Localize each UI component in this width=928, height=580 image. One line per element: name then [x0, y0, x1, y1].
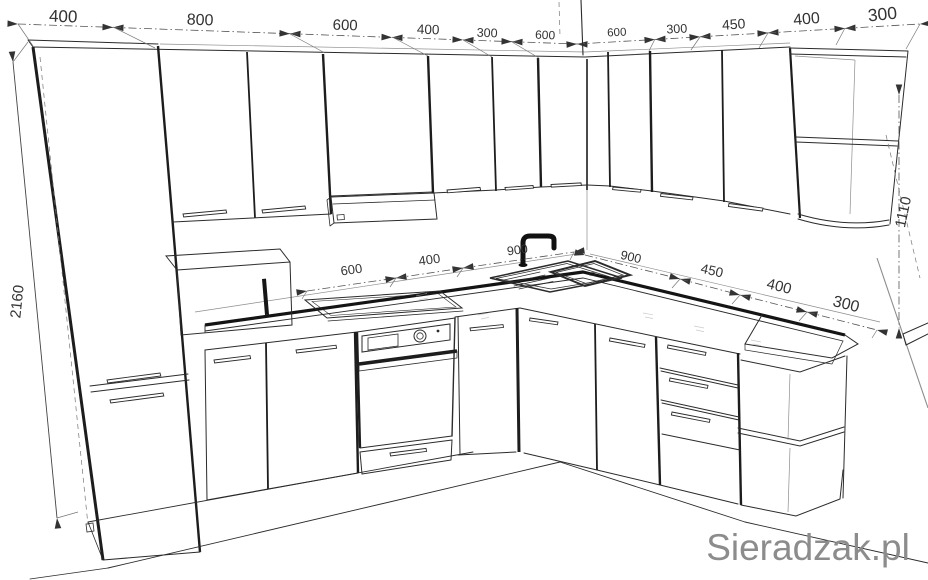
dim-wall-right-1: 600 — [607, 27, 627, 40]
drawer-unit — [660, 345, 741, 505]
base-door-handle — [609, 338, 645, 347]
tall-cabinet — [33, 46, 200, 560]
built-in-oven — [357, 318, 457, 474]
dim-wall-left-3: 600 — [332, 17, 358, 35]
dim-wall-right-3: 450 — [721, 15, 746, 33]
base-door-handle — [214, 356, 251, 363]
base-door-handle — [530, 318, 559, 325]
side-return-shelf — [903, 323, 928, 345]
drawer-handle — [671, 412, 710, 422]
base-door-handle — [296, 345, 337, 353]
wall-cabinet-400 — [428, 56, 496, 193]
open-shelf-base-unit — [738, 356, 847, 516]
dim-right-height: 1110 — [892, 195, 915, 229]
wall-cabinet-handle — [262, 206, 306, 213]
dim-counter-left-3: 900 — [506, 242, 529, 259]
dimension-chains: 400 800 600 400 300 600 600 300 450 400 … — [7, 0, 920, 525]
wall-cabinet-handle — [505, 186, 534, 191]
tall-cabinet-lower-handle — [110, 393, 164, 403]
watermark-text: Sieradzak.pl — [706, 527, 910, 568]
dim-wall-left-4: 400 — [417, 22, 440, 38]
base-door-handle — [470, 325, 504, 331]
dim-cabinet-height: 2160 — [7, 284, 27, 319]
wall-cabinet-handle — [551, 183, 581, 187]
kitchen-technical-drawing: 400 800 600 400 300 600 600 300 450 400 … — [0, 0, 928, 580]
dim-wall-right-2: 300 — [666, 21, 688, 36]
oven-handle — [359, 351, 457, 364]
kitchen-drawing-canvas: 400 800 600 400 300 600 600 300 450 400 … — [0, 0, 928, 580]
open-shelf-wall-unit — [790, 48, 908, 228]
dim-wall-left-1: 400 — [49, 7, 78, 27]
dim-counter-right-2: 450 — [699, 261, 724, 281]
wall-cabinet-800 — [173, 52, 331, 222]
wall-cabinet-handle — [183, 210, 227, 217]
oven-knob — [414, 330, 426, 342]
hood-cabinet — [323, 54, 437, 226]
oven-drawer-handle — [390, 448, 427, 456]
dim-counter-right-3: 400 — [765, 275, 793, 298]
counter-end-piece — [745, 315, 858, 364]
wall-cabinet-handle — [728, 204, 763, 212]
wall-cabinets-right-run — [585, 43, 908, 228]
dim-wall-right-4: 400 — [793, 10, 821, 29]
dim-counter-right-1: 900 — [619, 248, 643, 266]
dim-wall-left-2: 800 — [187, 12, 214, 30]
base-cabinets-right-run — [520, 308, 847, 516]
microwave-handle — [262, 279, 269, 315]
dim-wall-right-5: 300 — [867, 3, 898, 26]
wall-cabinet-300 — [492, 57, 541, 191]
drawer-handle — [669, 378, 708, 388]
dim-wall-left-5: 300 — [476, 26, 497, 41]
extractor-hood — [327, 193, 437, 226]
extension-lines — [13, 0, 920, 525]
dim-counter-left-1: 600 — [340, 261, 364, 279]
drawer-handle — [667, 345, 706, 355]
faucet-base — [519, 263, 528, 267]
dim-wall-left-6: 600 — [535, 28, 556, 43]
corner-wall-cabinet — [538, 58, 587, 250]
dim-counter-right-4: 300 — [831, 293, 861, 316]
dim-counter-left-2: 400 — [418, 251, 442, 269]
